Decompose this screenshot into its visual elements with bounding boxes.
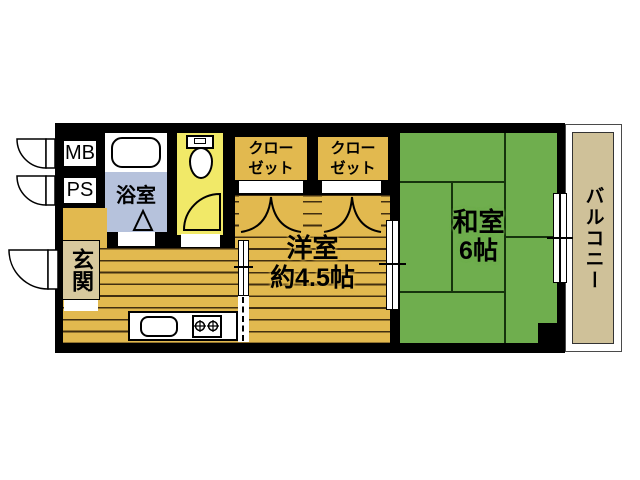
western-room-label-wrap: 洋室 約4.5帖 <box>235 233 390 294</box>
entrance-door-swing-icon <box>9 250 48 289</box>
bathroom-label-wrap: 浴室 <box>105 179 167 208</box>
japanese-room-size: 6帖 <box>400 237 557 266</box>
stove-burner-icons <box>194 320 219 332</box>
mb-door-swing-icon <box>17 139 46 168</box>
toilet-door-swing-icon <box>184 194 220 230</box>
balcony-label-wrap: バルコニー <box>572 132 614 344</box>
japanese-room-label: 和室 <box>400 207 557 237</box>
closet-2-bifold-door-icon <box>324 197 381 232</box>
bathroom-label: 浴室 <box>116 185 156 207</box>
western-room-size: 約4.5帖 <box>235 263 390 294</box>
floorplan-canvas: MB PS クロー ゼット クロー ゼット 玄関 <box>0 0 640 480</box>
entrance-door-leaf-icon <box>48 250 58 289</box>
ps-door-swing-icon <box>17 176 46 205</box>
closet-1-bifold-door-icon <box>241 197 301 232</box>
bath-door-triangle-icon <box>134 211 152 230</box>
ps-door-leaf-icon <box>46 176 55 205</box>
japanese-room-label-wrap: 和室 6帖 <box>400 207 557 266</box>
western-room-label: 洋室 <box>235 233 390 263</box>
mb-door-leaf-icon <box>46 139 55 168</box>
balcony-label: バルコニー <box>580 186 607 291</box>
